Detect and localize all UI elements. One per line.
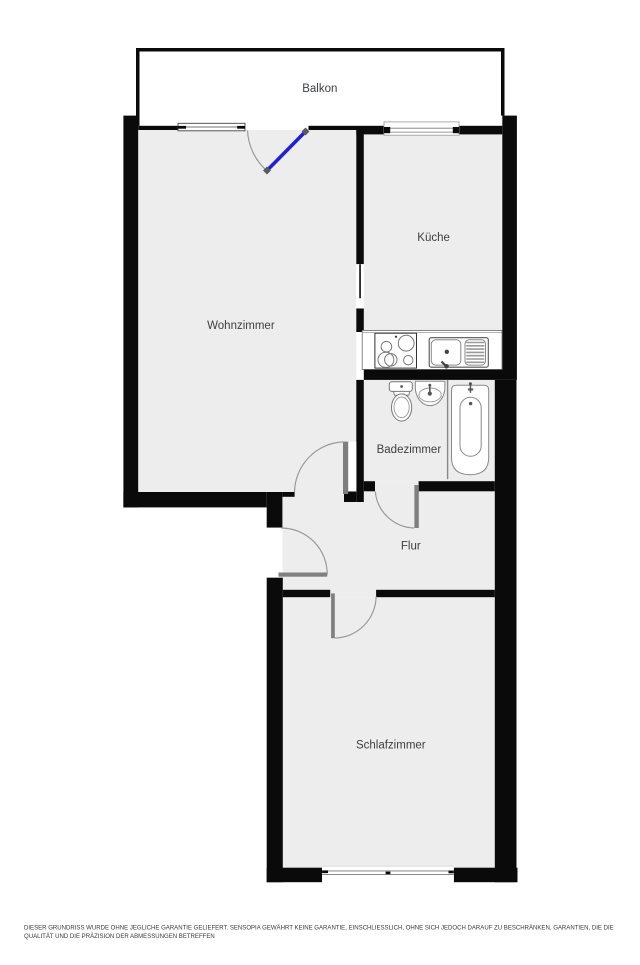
svg-text:Badezimmer: Badezimmer bbox=[377, 444, 442, 456]
svg-text:Küche: Küche bbox=[417, 232, 450, 244]
svg-text:Wohnzimmer: Wohnzimmer bbox=[207, 320, 275, 332]
svg-text:Flur: Flur bbox=[401, 541, 421, 553]
svg-text:Schlafzimmer: Schlafzimmer bbox=[356, 740, 426, 752]
svg-text:Balkon: Balkon bbox=[302, 83, 337, 95]
svg-text:DIESER GRUNDRISS WURDE OHNE JE: DIESER GRUNDRISS WURDE OHNE JEGLICHE GAR… bbox=[24, 924, 614, 931]
svg-text:QUALITÄT UND DIE PRÄZISION DER: QUALITÄT UND DIE PRÄZISION DER ABMESSUNG… bbox=[24, 933, 215, 940]
